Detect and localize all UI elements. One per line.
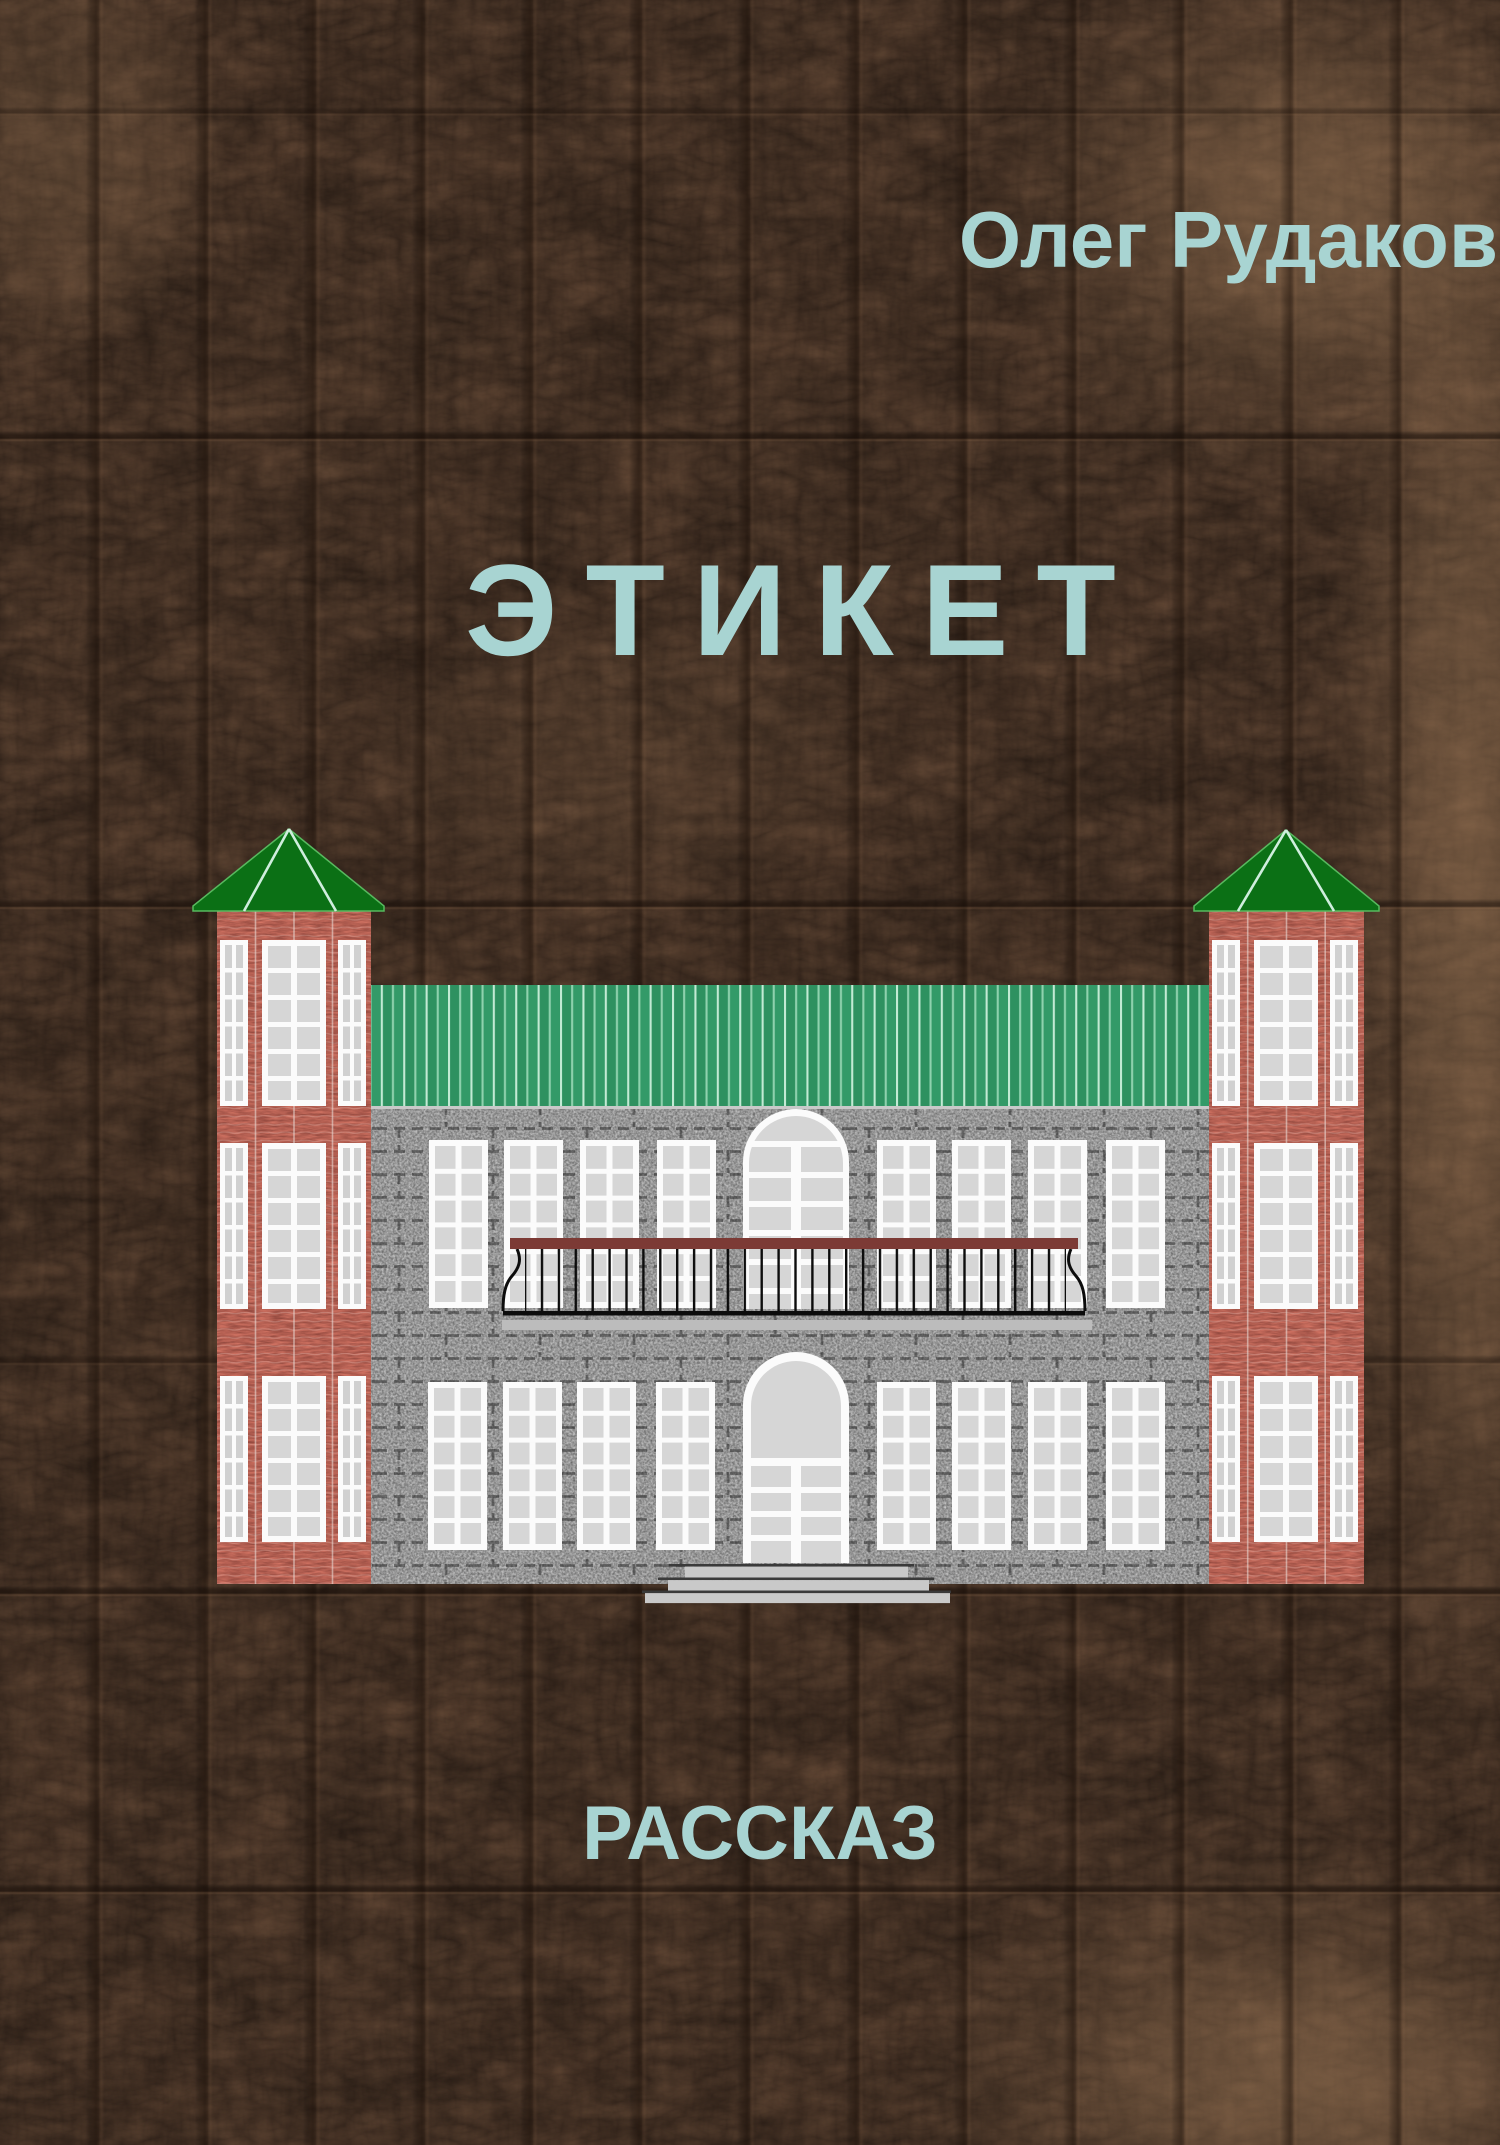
svg-text:Олег Рудаков: Олег Рудаков xyxy=(959,195,1498,284)
svg-text:ЭТИКЕТ: ЭТИКЕТ xyxy=(465,537,1144,683)
svg-text:РАССКАЗ: РАССКАЗ xyxy=(582,1791,938,1876)
